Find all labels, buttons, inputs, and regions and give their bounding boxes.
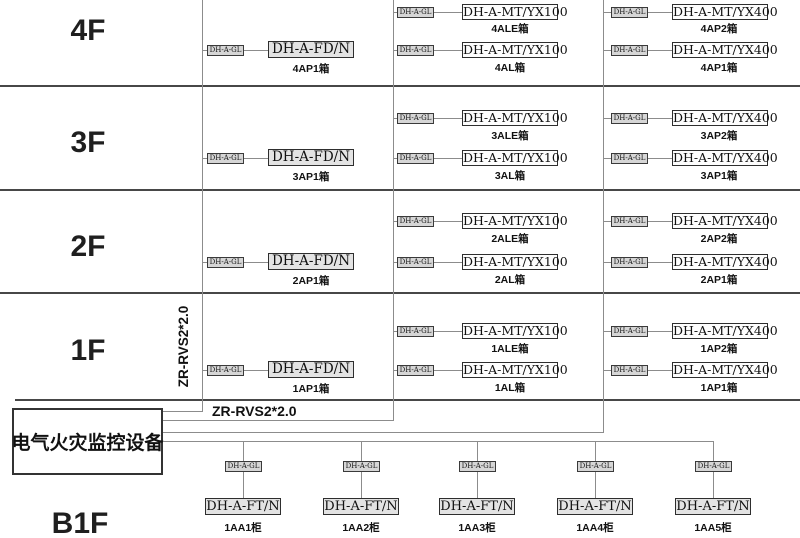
floor-label-2f: 2F	[56, 230, 120, 264]
riser-line-middle	[393, 0, 394, 421]
gl-module-box: DH-A-GL	[397, 216, 434, 227]
feeder-cable-label: ZR-RVS2*2.0	[212, 403, 297, 419]
unit-name-label: 1ALE箱	[470, 341, 550, 356]
gl-module-box: DH-A-GL	[225, 461, 262, 472]
unit-name-label: 3AP1箱	[679, 168, 759, 183]
device-box: DH-A-FD/N	[268, 253, 354, 270]
unit-name-label: 2AP1箱	[679, 272, 759, 287]
gl-module-box: DH-A-GL	[611, 216, 648, 227]
device-box: DH-A-MT/YX400	[672, 110, 768, 126]
floor-separator-3f-2f	[0, 189, 800, 191]
floor-separator-1f-b1f	[15, 399, 800, 401]
device-box: DH-A-FT/N	[323, 498, 399, 515]
unit-name-label: 3AP1箱	[271, 169, 351, 184]
unit-name-label: 2ALE箱	[470, 231, 550, 246]
device-box: DH-A-FT/N	[557, 498, 633, 515]
gl-module-box: DH-A-GL	[397, 326, 434, 337]
unit-name-label: 4AL箱	[470, 60, 550, 75]
unit-name-label: 4AP1箱	[271, 61, 351, 76]
gl-module-box: DH-A-GL	[397, 45, 434, 56]
feeder-wire-right-riser	[163, 432, 603, 433]
device-box: DH-A-MT/YX100	[462, 362, 558, 378]
riser-line-right	[603, 0, 604, 433]
unit-name-label: 2AP2箱	[679, 231, 759, 246]
device-box: DH-A-MT/YX400	[672, 150, 768, 166]
device-box: DH-A-MT/YX400	[672, 323, 768, 339]
floor-label-4f: 4F	[56, 14, 120, 48]
device-box: DH-A-FT/N	[205, 498, 281, 515]
gl-module-box: DH-A-GL	[207, 45, 244, 56]
feeder-wire-middle-riser	[163, 420, 393, 421]
gl-module-box: DH-A-GL	[397, 257, 434, 268]
gl-module-box: DH-A-GL	[343, 461, 380, 472]
unit-name-label: 1AA5柜	[673, 520, 753, 535]
unit-name-label: 2AL箱	[470, 272, 550, 287]
device-box: DH-A-MT/YX100	[462, 254, 558, 270]
gl-module-box: DH-A-GL	[611, 7, 648, 18]
unit-name-label: 4AP1箱	[679, 60, 759, 75]
unit-name-label: 2AP1箱	[271, 273, 351, 288]
gl-module-box: DH-A-GL	[397, 153, 434, 164]
unit-name-label: 1AP1箱	[271, 381, 351, 396]
unit-name-label: 3ALE箱	[470, 128, 550, 143]
unit-name-label: 1AP1箱	[679, 380, 759, 395]
device-box: DH-A-FD/N	[268, 149, 354, 166]
unit-name-label: 3AP2箱	[679, 128, 759, 143]
riser-line-left	[202, 0, 203, 412]
device-box: DH-A-MT/YX400	[672, 254, 768, 270]
feeder-wire-left-riser	[163, 411, 202, 412]
unit-name-label: 1AA1柜	[203, 520, 283, 535]
floor-label-b1f: B1F	[48, 507, 112, 538]
gl-module-box: DH-A-GL	[611, 257, 648, 268]
gl-module-box: DH-A-GL	[207, 365, 244, 376]
floor-label-1f: 1F	[56, 334, 120, 368]
gl-module-box: DH-A-GL	[611, 365, 648, 376]
gl-module-box: DH-A-GL	[611, 113, 648, 124]
device-box: DH-A-MT/YX100	[462, 42, 558, 58]
gl-module-box: DH-A-GL	[695, 461, 732, 472]
floor-separator-4f-3f	[0, 85, 800, 87]
device-box: DH-A-MT/YX400	[672, 213, 768, 229]
device-box: DH-A-MT/YX100	[462, 150, 558, 166]
gl-module-box: DH-A-GL	[611, 153, 648, 164]
device-box: DH-A-FD/N	[268, 361, 354, 378]
basement-bus-line	[163, 441, 713, 442]
riser-cable-label: ZR-RVS2*2.0	[176, 299, 191, 394]
device-box: DH-A-FT/N	[439, 498, 515, 515]
unit-name-label: 3AL箱	[470, 168, 550, 183]
fire-monitoring-system-diagram: 4F 3F 2F 1F B1F DH-A-GL DH-A-FD/N 4AP1箱 …	[0, 0, 800, 538]
unit-name-label: 1AA3柜	[437, 520, 517, 535]
floor-label-3f: 3F	[56, 126, 120, 160]
fire-monitor-equipment-box: 电气火灾监控设备	[12, 408, 163, 475]
gl-module-box: DH-A-GL	[611, 45, 648, 56]
gl-module-box: DH-A-GL	[577, 461, 614, 472]
device-box: DH-A-FD/N	[268, 41, 354, 58]
device-box: DH-A-MT/YX400	[672, 362, 768, 378]
unit-name-label: 1AP2箱	[679, 341, 759, 356]
unit-name-label: 4AP2箱	[679, 21, 759, 36]
device-box: DH-A-MT/YX100	[462, 4, 558, 20]
unit-name-label: 1AL箱	[470, 380, 550, 395]
gl-module-box: DH-A-GL	[397, 7, 434, 18]
device-box: DH-A-MT/YX100	[462, 323, 558, 339]
floor-separator-2f-1f	[0, 292, 800, 294]
unit-name-label: 1AA2柜	[321, 520, 401, 535]
device-box: DH-A-FT/N	[675, 498, 751, 515]
device-box: DH-A-MT/YX400	[672, 42, 768, 58]
gl-module-box: DH-A-GL	[397, 365, 434, 376]
unit-name-label: 4ALE箱	[470, 21, 550, 36]
device-box: DH-A-MT/YX400	[672, 4, 768, 20]
gl-module-box: DH-A-GL	[207, 257, 244, 268]
unit-name-label: 1AA4柜	[555, 520, 635, 535]
gl-module-box: DH-A-GL	[207, 153, 244, 164]
device-box: DH-A-MT/YX100	[462, 110, 558, 126]
gl-module-box: DH-A-GL	[397, 113, 434, 124]
gl-module-box: DH-A-GL	[459, 461, 496, 472]
gl-module-box: DH-A-GL	[611, 326, 648, 337]
device-box: DH-A-MT/YX100	[462, 213, 558, 229]
